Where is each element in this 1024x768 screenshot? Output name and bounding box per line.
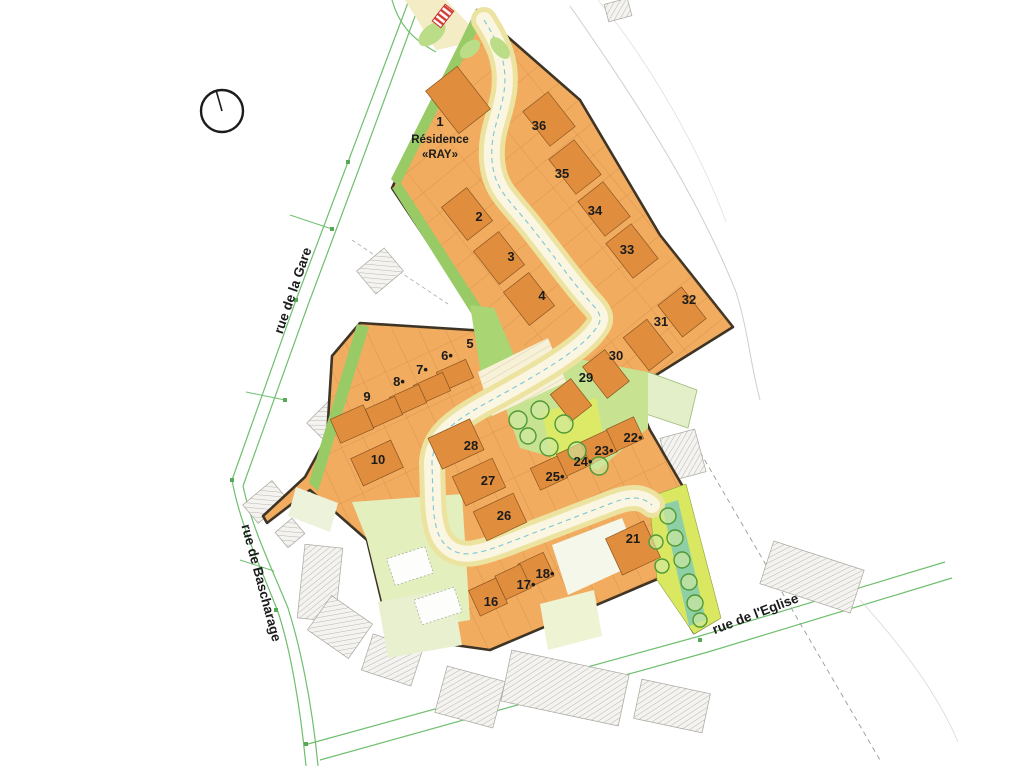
survey-marker — [346, 160, 350, 164]
survey-marker — [330, 227, 334, 231]
survey-marker — [304, 742, 308, 746]
lot-label: 29 — [579, 370, 593, 385]
tree-icon — [667, 530, 683, 546]
tree-icon — [509, 411, 527, 429]
lot-label: 9 — [363, 389, 370, 404]
compass-needle — [216, 90, 222, 111]
survey-marker — [230, 478, 234, 482]
survey-branch-2 — [246, 392, 285, 400]
lot-label: 7• — [416, 362, 428, 377]
lot-label: 35 — [555, 166, 569, 181]
tree-icon — [655, 559, 669, 573]
plan-canvas: 23456•7•8•9101617•18•2122•23•24•25•26272… — [0, 0, 1024, 768]
residence-label: Résidence — [411, 134, 469, 146]
lot-label: 17• — [516, 577, 535, 592]
lot-label: 8• — [393, 374, 405, 389]
symbols-layer — [201, 4, 454, 132]
lot-label: 18• — [535, 566, 554, 581]
lot-label: 16 — [484, 594, 498, 609]
existing-building — [357, 248, 404, 294]
residence-label: 1 — [436, 114, 443, 129]
existing-building — [604, 0, 632, 22]
lot-label: 24• — [573, 454, 592, 469]
street-label: rue de l'Eglise — [710, 590, 801, 637]
lot-label: 26 — [497, 508, 511, 523]
site-plan-svg: 23456•7•8•9101617•18•2122•23•24•25•26272… — [0, 0, 1024, 768]
zone-pale-green-ne — [640, 372, 697, 428]
lot-label: 22• — [623, 430, 642, 445]
lot-label: 28 — [464, 438, 478, 453]
survey-marker — [698, 638, 702, 642]
lot-label: 36 — [532, 118, 546, 133]
tree-icon — [674, 552, 690, 568]
lot-label: 6• — [441, 348, 453, 363]
existing-building — [275, 518, 305, 547]
existing-building — [435, 666, 505, 728]
lot-label: 10 — [371, 452, 385, 467]
tree-icon — [555, 415, 573, 433]
tree-icon — [520, 428, 536, 444]
tree-icon — [649, 535, 663, 549]
lot-label: 31 — [654, 314, 668, 329]
tree-icon — [693, 613, 707, 627]
tree-icon — [590, 457, 608, 475]
lot-label: 33 — [620, 242, 634, 257]
contour-line-3 — [860, 600, 958, 742]
street-label: rue de la Gare — [271, 245, 315, 335]
survey-marker — [283, 398, 287, 402]
lot-label: 3 — [507, 249, 514, 264]
lot-label: 34 — [588, 203, 603, 218]
lot-label: 25• — [545, 469, 564, 484]
lot-label: 21 — [626, 531, 640, 546]
tree-icon — [540, 438, 558, 456]
tree-icon — [681, 574, 697, 590]
tree-icon — [660, 508, 676, 524]
tree-icon — [687, 595, 703, 611]
lot-label: 2 — [475, 209, 482, 224]
lot-label: 32 — [682, 292, 696, 307]
lot-label: 27 — [481, 473, 495, 488]
lot-label: 30 — [609, 348, 623, 363]
residence-label: «RAY» — [422, 149, 458, 161]
lot-label: 5 — [466, 336, 473, 351]
lot-label: 4 — [538, 288, 546, 303]
existing-building — [501, 650, 629, 726]
tree-icon — [531, 401, 549, 419]
lot-label: 23• — [594, 443, 613, 458]
existing-building — [634, 679, 711, 733]
